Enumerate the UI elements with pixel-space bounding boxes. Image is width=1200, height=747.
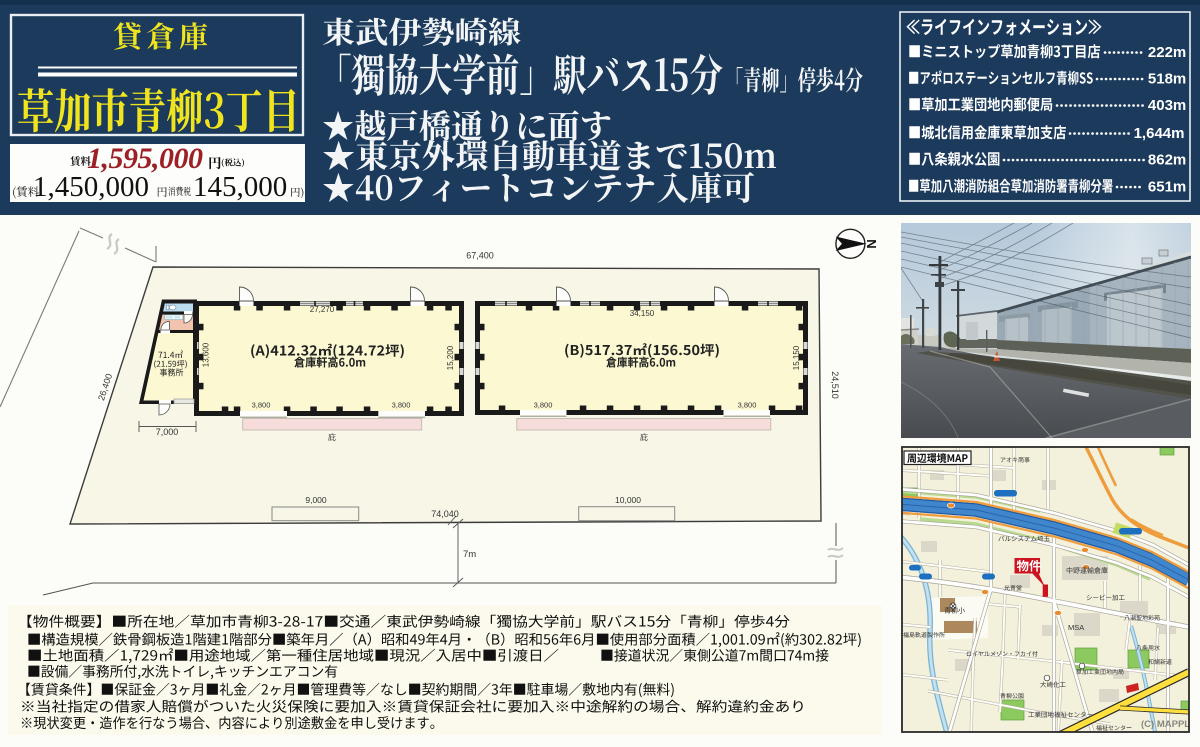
- svg-text:67,400: 67,400: [466, 251, 494, 261]
- svg-text:74,040: 74,040: [431, 509, 459, 519]
- svg-text:3,800: 3,800: [534, 401, 553, 410]
- svg-text:10,000: 10,000: [615, 495, 641, 505]
- svg-text:1,644m: 1,644m: [1134, 125, 1185, 142]
- svg-text:13,600: 13,600: [202, 342, 211, 367]
- svg-text:403m: 403m: [1148, 97, 1186, 114]
- svg-text:27,270: 27,270: [310, 305, 335, 314]
- svg-text:651m: 651m: [1148, 179, 1186, 196]
- svg-text:7m: 7m: [463, 549, 476, 560]
- svg-text:3,800: 3,800: [738, 401, 757, 410]
- svg-text:MSA: MSA: [1068, 623, 1084, 632]
- svg-text:15,150: 15,150: [792, 345, 801, 370]
- svg-text:7,000: 7,000: [156, 427, 179, 437]
- svg-text:145,000: 145,000: [193, 171, 287, 203]
- svg-text:862m: 862m: [1148, 152, 1186, 169]
- svg-text:3,800: 3,800: [392, 401, 411, 410]
- svg-text:3,800: 3,800: [252, 401, 271, 410]
- svg-text:15,200: 15,200: [446, 345, 455, 370]
- svg-text:9,000: 9,000: [305, 495, 327, 505]
- svg-text:1,450,000: 1,450,000: [33, 171, 149, 203]
- svg-text:518m: 518m: [1148, 71, 1186, 88]
- svg-text:34,150: 34,150: [630, 309, 655, 318]
- svg-text:24,510: 24,510: [830, 371, 840, 399]
- svg-text:222m: 222m: [1148, 44, 1186, 61]
- svg-text:N: N: [864, 239, 879, 248]
